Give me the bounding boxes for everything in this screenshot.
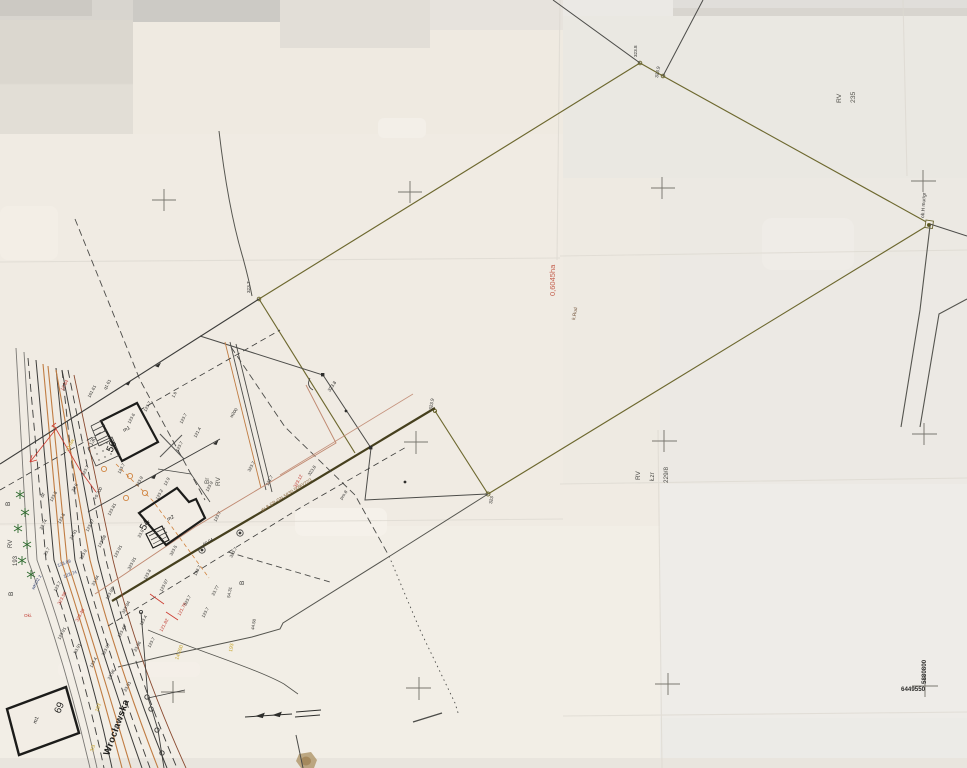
svg-text:RV: RV — [8, 540, 14, 548]
svg-text:B: B — [239, 581, 246, 585]
svg-text:229/8: 229/8 — [663, 467, 670, 483]
svg-text:B: B — [5, 502, 12, 506]
svg-text:RV: RV — [836, 93, 843, 103]
svg-text:RV: RV — [635, 471, 642, 480]
svg-text:5880800: 5880800 — [921, 659, 928, 684]
svg-text:Oki.: Oki. — [24, 613, 32, 618]
svg-text:323.7: 323.7 — [246, 281, 251, 293]
svg-text:323.8: 323.8 — [633, 45, 638, 57]
svg-text:235: 235 — [850, 91, 857, 103]
svg-text:RV: RV — [215, 477, 222, 486]
svg-text:B: B — [8, 592, 15, 596]
svg-text:6449550: 6449550 — [901, 686, 926, 693]
svg-text:193: 193 — [13, 555, 19, 566]
svg-text:0,6045ha: 0,6045ha — [548, 264, 557, 296]
svg-text:Łzr: Łzr — [649, 471, 656, 481]
